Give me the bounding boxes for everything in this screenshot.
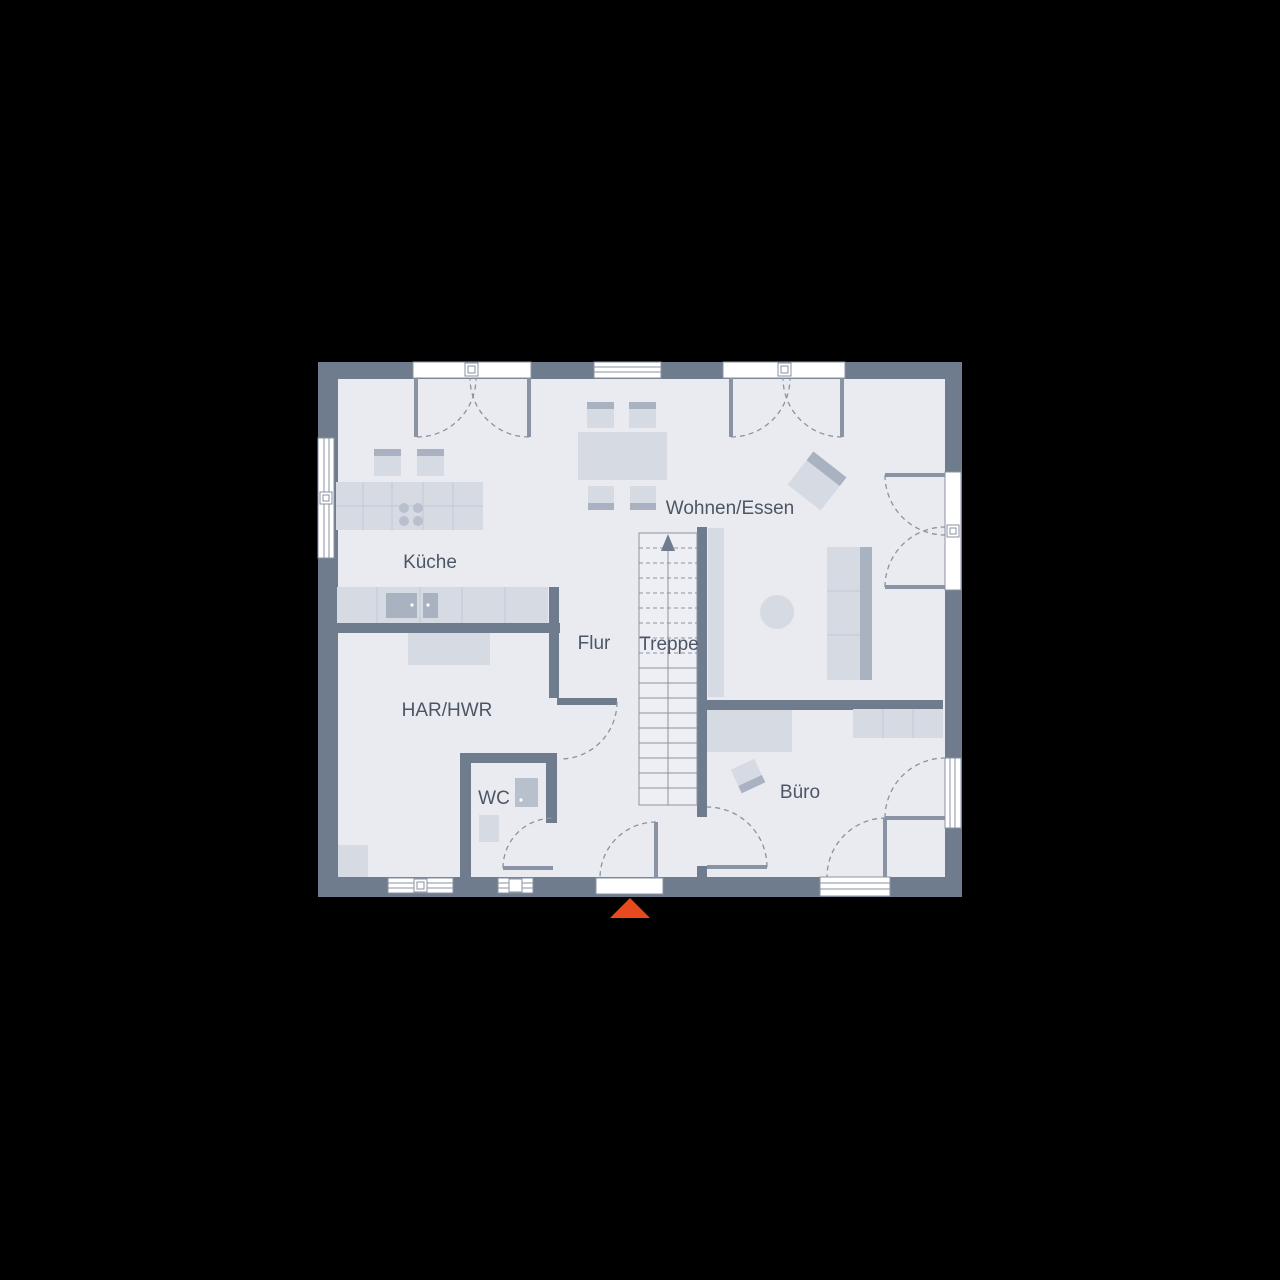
counter: [337, 587, 548, 623]
room-label-wohnen-essen: Wohnen/Essen: [666, 498, 795, 519]
chair-back: [629, 402, 656, 409]
cooktop-burner-icon: [413, 516, 423, 526]
window-frame: [945, 758, 961, 828]
wc-sink: [515, 778, 538, 807]
door-leaf: [885, 816, 945, 820]
har-corner-unit: [338, 845, 368, 877]
washer-unit: [408, 633, 490, 665]
cooktop-burner-icon: [399, 516, 409, 526]
window-sash-inner: [950, 528, 956, 534]
window-sash-inner: [468, 366, 475, 373]
window-sash-icon: [509, 879, 522, 892]
wall-flur-west: [549, 587, 559, 698]
desk: [707, 710, 792, 752]
window-kitchen-left: [318, 438, 334, 558]
door-leaf-bottom: [885, 585, 945, 589]
stool-back: [417, 449, 444, 456]
wall-living-buero: [707, 700, 943, 710]
room-label-kueche: Küche: [403, 552, 457, 573]
chair-back: [630, 503, 656, 510]
window-frame: [820, 877, 890, 896]
chair-back: [587, 402, 614, 409]
wall-stub-buero-door: [697, 866, 707, 877]
shelf-buero: [853, 709, 943, 738]
kitchen-counter-top: [336, 482, 483, 530]
sofa: [827, 547, 872, 680]
window-sash-inner: [781, 366, 788, 373]
door-leaf-left: [729, 378, 733, 437]
window-dining-fixed: [594, 362, 661, 378]
har-door-leaf: [557, 698, 617, 705]
chair-back: [588, 503, 614, 510]
coffee-table: [760, 595, 794, 629]
door-leaf: [883, 818, 887, 877]
sink-unit: [423, 593, 438, 618]
door-leaf-top: [885, 473, 945, 477]
window-wc-bottom: [498, 878, 533, 893]
door-leaf-right: [527, 378, 531, 437]
door-leaf-right: [840, 378, 844, 437]
stool-back: [374, 449, 401, 456]
room-label-treppe: Treppe: [639, 634, 699, 655]
wall-stairs-east: [697, 527, 707, 817]
faucet-dot-icon: [519, 798, 522, 801]
door-leaf-left: [414, 378, 418, 437]
wall-kitchen-har: [338, 623, 560, 633]
door-leaf: [654, 822, 658, 878]
shelf: [853, 709, 943, 738]
wall-wc-top: [460, 753, 557, 763]
faucet-dot-icon: [410, 603, 413, 606]
window-sash-inner: [323, 495, 329, 501]
door-frame: [596, 878, 663, 894]
window-sash-inner: [417, 882, 424, 889]
cooktop-burner-icon: [413, 503, 423, 513]
window-frame: [594, 362, 661, 378]
staircase: [639, 533, 697, 805]
wall-wc-left: [460, 753, 471, 877]
dining-table: [578, 432, 667, 480]
cooktop-burner-icon: [399, 503, 409, 513]
entrance-direction-triangle-icon: [610, 898, 650, 918]
sofa-back: [860, 547, 872, 680]
room-label-har-hwr: HAR/HWR: [402, 700, 493, 721]
toilet: [479, 815, 499, 842]
faucet-dot-icon: [426, 603, 429, 606]
wall-wc-right: [546, 753, 557, 823]
door-leaf: [503, 866, 553, 870]
room-label-wc: WC: [478, 788, 510, 809]
window-har-bottom: [388, 878, 453, 893]
floor-plan: Küche Wohnen/Essen Flur Treppe HAR/HWR W…: [0, 0, 1280, 1280]
door-leaf: [707, 865, 767, 869]
floor-plan-canvas: Küche Wohnen/Essen Flur Treppe HAR/HWR W…: [0, 0, 1280, 1280]
room-label-buero: Büro: [780, 782, 820, 803]
sideboard: [708, 528, 724, 697]
kitchen-counter-bottom: [337, 587, 548, 623]
room-label-flur: Flur: [578, 633, 611, 654]
